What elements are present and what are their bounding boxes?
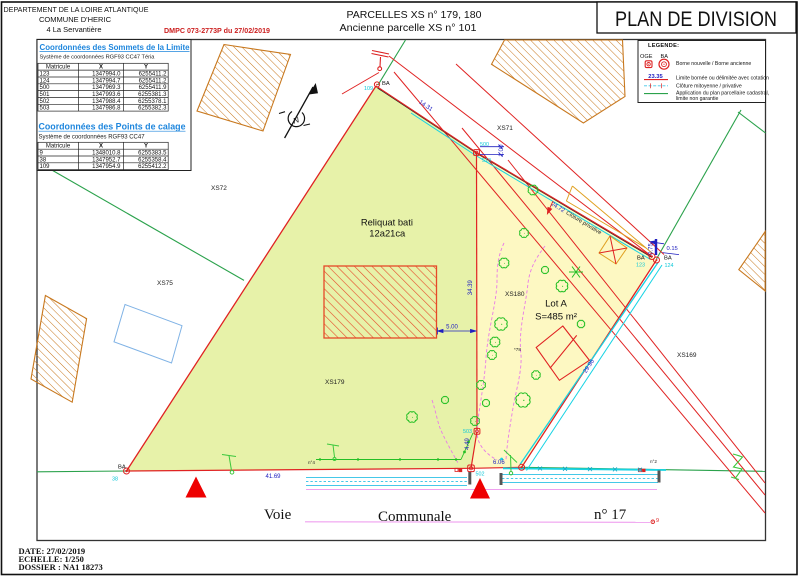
svg-text:123: 123 [636,263,645,269]
svg-text:1347969.3: 1347969.3 [92,85,121,91]
svg-text:DEPARTEMENT DE LA LOIRE ATLANT: DEPARTEMENT DE LA LOIRE ATLANTIQUE [4,5,149,14]
svg-text:XS180: XS180 [505,291,525,298]
svg-text:12a21ca: 12a21ca [369,228,406,239]
svg-text:6255411.9: 6255411.9 [139,85,168,91]
svg-text:n°4: n°4 [308,460,315,465]
svg-text:OGE: OGE [640,54,653,60]
svg-text:1.00: 1.00 [498,144,505,157]
svg-text:1347993.6: 1347993.6 [92,92,121,98]
svg-text:1347988.4: 1347988.4 [92,99,121,105]
svg-text:502: 502 [476,472,485,478]
svg-text:6255411.2: 6255411.2 [139,72,168,78]
svg-text:XS179: XS179 [325,379,345,386]
svg-text:510: 510 [482,158,491,164]
svg-text:limite non garantie: limite non garantie [676,96,719,102]
svg-text:S=485 m²: S=485 m² [535,312,578,323]
svg-text:XS75: XS75 [157,280,173,287]
svg-text:Matricule: Matricule [46,65,71,71]
svg-text:*78: *78 [514,347,521,352]
svg-text:Reliquat bati: Reliquat bati [361,217,413,228]
svg-text:6255358.4: 6255358.4 [138,157,167,163]
svg-text:n° 17: n° 17 [594,507,627,523]
svg-text:41.69: 41.69 [265,474,281,480]
svg-text:1347954.9: 1347954.9 [92,164,121,170]
svg-text:6.06: 6.06 [493,460,505,466]
svg-text:LEGENDE:: LEGENDE: [648,43,679,49]
svg-text:4.49: 4.49 [465,438,471,450]
svg-text:Système de coordonnées RGF93 C: Système de coordonnées RGF93 CC47 Téria [40,55,156,61]
svg-text:X: X [99,144,103,150]
svg-text:6255382.3: 6255382.3 [138,106,167,112]
svg-text:DOSSIER : NA1 18273: DOSSIER : NA1 18273 [19,562,103,572]
svg-text:6255378.1: 6255378.1 [138,99,167,105]
svg-text:n°2: n°2 [650,459,657,464]
svg-text:124: 124 [40,78,51,84]
svg-text:123: 123 [40,72,51,78]
svg-text:5.00: 5.00 [446,325,458,331]
svg-text:Lot A: Lot A [545,299,567,310]
svg-text:1347994.7: 1347994.7 [92,78,121,84]
svg-text:6255381.3: 6255381.3 [138,92,167,98]
svg-text:Limite bornée ou délimitée ave: Limite bornée ou délimitée avec cotation [676,76,769,82]
svg-text:502: 502 [40,99,51,105]
svg-text:PARCELLES XS n° 179, 180: PARCELLES XS n° 179, 180 [347,9,482,21]
svg-text:Coordonnées des Sommets de la: Coordonnées des Sommets de la Limite [40,42,190,52]
svg-text:6255411.2: 6255411.2 [139,78,168,84]
svg-text:1347994.0: 1347994.0 [92,72,121,78]
svg-text:Coordonnées des Points de cala: Coordonnées des Points de calage [39,121,186,132]
svg-text:XS72: XS72 [211,185,227,192]
svg-text:4 La Servantière: 4 La Servantière [47,25,102,34]
svg-text:9: 9 [656,518,659,524]
svg-text:X: X [99,65,103,71]
svg-text:COMMUNE D'HERIC: COMMUNE D'HERIC [39,15,112,24]
svg-text:124: 124 [665,263,674,269]
svg-text:BA: BA [637,256,645,262]
svg-text:Matricule: Matricule [46,144,71,150]
svg-text:0.15: 0.15 [667,246,678,252]
svg-text:1348010.8: 1348010.8 [92,151,121,157]
svg-text:DMPC 073-2773P du 27/02/2019: DMPC 073-2773P du 27/02/2019 [164,26,270,35]
svg-text:1347986.8: 1347986.8 [92,106,121,112]
svg-text:38: 38 [112,477,118,483]
svg-text:XS71: XS71 [497,125,513,132]
svg-text:500: 500 [40,85,51,91]
svg-text:34.39: 34.39 [468,280,474,296]
svg-text:0.75: 0.75 [649,243,655,255]
svg-text:Y: Y [144,144,148,150]
svg-text:1347952.7: 1347952.7 [92,157,121,163]
svg-text:PLAN DE DIVISION: PLAN DE DIVISION [615,8,777,31]
svg-text:503: 503 [463,429,472,435]
svg-text:6255383.5: 6255383.5 [138,151,167,157]
svg-text:501: 501 [40,92,51,98]
svg-text:503: 503 [40,106,51,112]
svg-text:Voie: Voie [264,507,292,523]
svg-text:BA: BA [382,81,390,87]
svg-text:Ancienne parcelle XS n° 101: Ancienne parcelle XS n° 101 [340,22,477,34]
svg-text:6255412.2: 6255412.2 [138,164,167,170]
svg-text:BA: BA [664,256,672,262]
svg-text:109: 109 [364,86,373,92]
svg-text:Y: Y [144,65,148,71]
svg-text:Clôture mitoyenne / privative: Clôture mitoyenne / privative [676,84,742,90]
svg-text:500: 500 [480,142,489,148]
svg-text:XS169: XS169 [677,352,697,359]
svg-text:38: 38 [40,157,47,163]
svg-text:Système de coordonnées RGF93 C: Système de coordonnées RGF93 CC47 [39,135,146,141]
svg-text:Communale: Communale [378,509,452,525]
svg-text:BA: BA [118,465,126,471]
svg-text:109: 109 [40,164,51,170]
svg-text:Borne nouvelle / Borne ancienn: Borne nouvelle / Borne ancienne [676,61,751,67]
